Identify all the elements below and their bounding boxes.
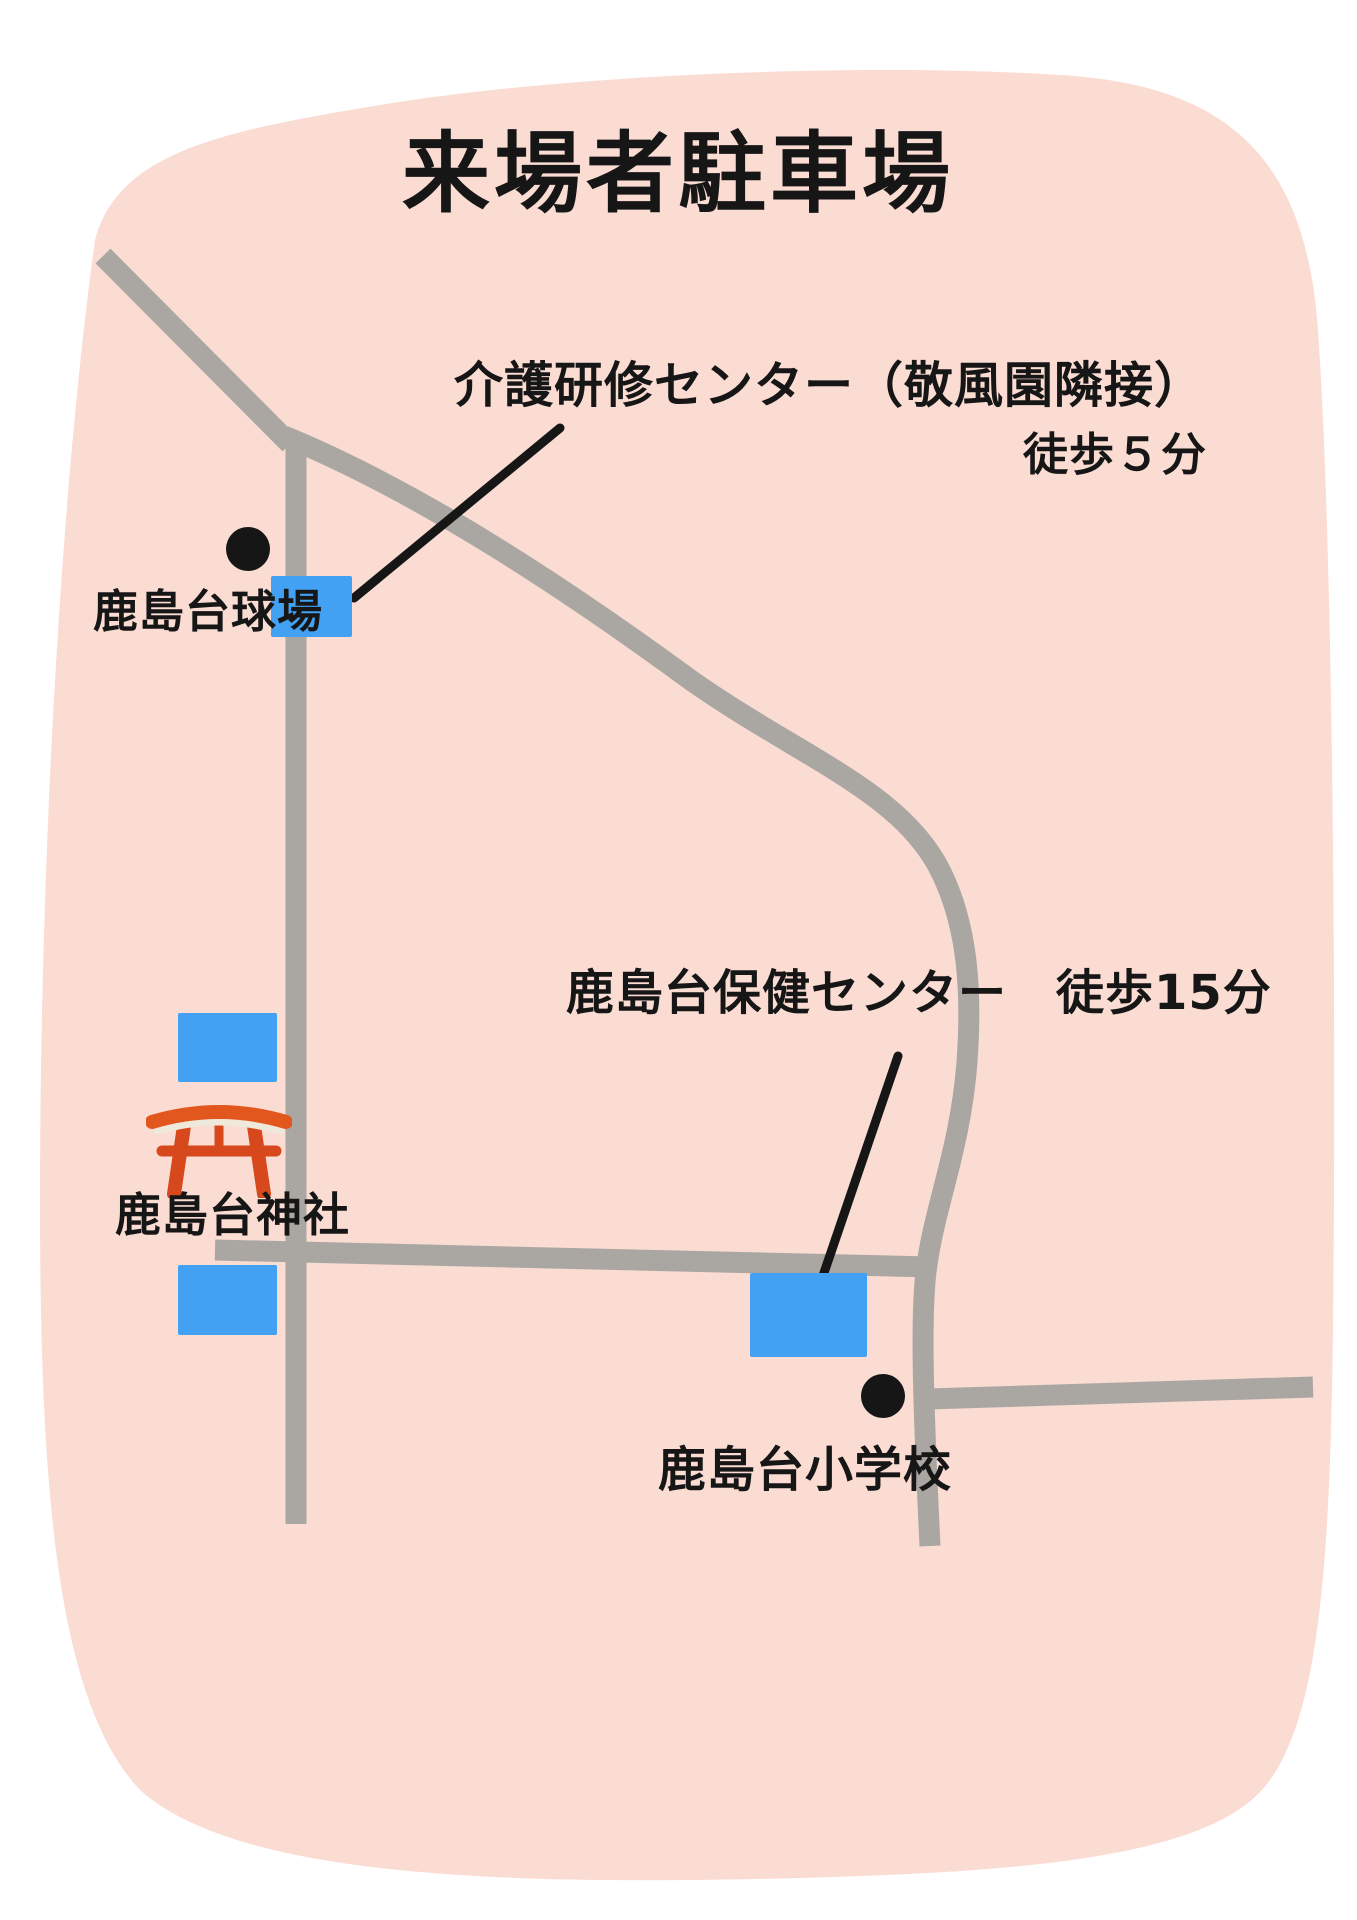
school-label: 鹿島台小学校 — [658, 1445, 952, 1495]
health-center-caption: 鹿島台保健センター 徒歩15分 — [566, 968, 1272, 1018]
parking-area-shrine-upper — [178, 1013, 277, 1082]
school-landmark-dot-icon — [861, 1374, 905, 1418]
parking-area-shrine-lower — [178, 1265, 277, 1335]
map-canvas — [0, 0, 1357, 1920]
torii-gate-icon — [146, 1096, 292, 1198]
parking-area-health-center — [750, 1273, 867, 1357]
shrine-label: 鹿島台神社 — [115, 1191, 350, 1239]
ballpark-landmark-dot-icon — [226, 527, 270, 571]
ballpark-label: 鹿島台球場 — [93, 588, 323, 635]
training-center-walk-time: 徒歩５分 — [1023, 431, 1207, 478]
road-school-horizontal — [928, 1387, 1313, 1399]
parking-map-poster: 来場者駐車場 介護研修センター（敬風園隣接） 徒歩５分 鹿島台球場 鹿島台保健セ… — [0, 0, 1357, 1920]
training-center-caption: 介護研修センター（敬風園隣接） — [454, 360, 1204, 411]
poster-title: 来場者駐車場 — [402, 128, 954, 220]
